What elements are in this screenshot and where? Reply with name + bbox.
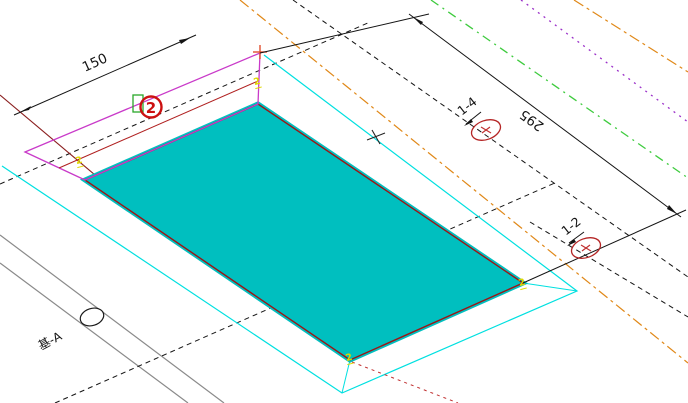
aux-violet-line bbox=[521, 0, 688, 122]
table-edge-line-2 bbox=[0, 263, 188, 403]
axis-bubble[interactable] bbox=[78, 305, 106, 329]
corner-mark-top: 2 bbox=[252, 76, 261, 88]
part-bubble-number[interactable]: 2 bbox=[146, 99, 156, 117]
dim-295-arrow-top[interactable] bbox=[413, 17, 423, 25]
dim-150-line[interactable] bbox=[14, 35, 196, 115]
dim-295-line[interactable] bbox=[409, 14, 681, 217]
corner-mark-right: 2 bbox=[517, 277, 526, 289]
dim-150-text[interactable]: 150 bbox=[80, 50, 110, 75]
corner-mark-left: 2 bbox=[74, 155, 83, 167]
dim-295-ext-bottom[interactable] bbox=[523, 210, 686, 283]
panel-top-face[interactable] bbox=[85, 104, 523, 360]
dim-150-arrow-right[interactable] bbox=[179, 38, 190, 44]
aux-orange-line-2 bbox=[574, 0, 688, 72]
aux-green-line bbox=[431, 0, 688, 178]
dim-295-ext-top[interactable] bbox=[260, 14, 429, 53]
cad-drawing-viewport[interactable]: 1502951-41-22基-A2222 bbox=[0, 0, 688, 403]
drawing-canvas[interactable]: 1502951-41-22基-A2222 bbox=[0, 0, 688, 403]
table-edge-line-1 bbox=[0, 235, 224, 403]
dim-295-text[interactable]: 295 bbox=[517, 106, 547, 134]
section-1-4-label[interactable]: 1-4 bbox=[454, 94, 479, 118]
mold-edge-bottom-corner[interactable] bbox=[342, 360, 350, 393]
dim-295-arrow-bottom[interactable] bbox=[667, 205, 677, 214]
panel-axis-dotted-red bbox=[352, 362, 458, 403]
axis-label[interactable]: 基-A bbox=[36, 329, 65, 353]
